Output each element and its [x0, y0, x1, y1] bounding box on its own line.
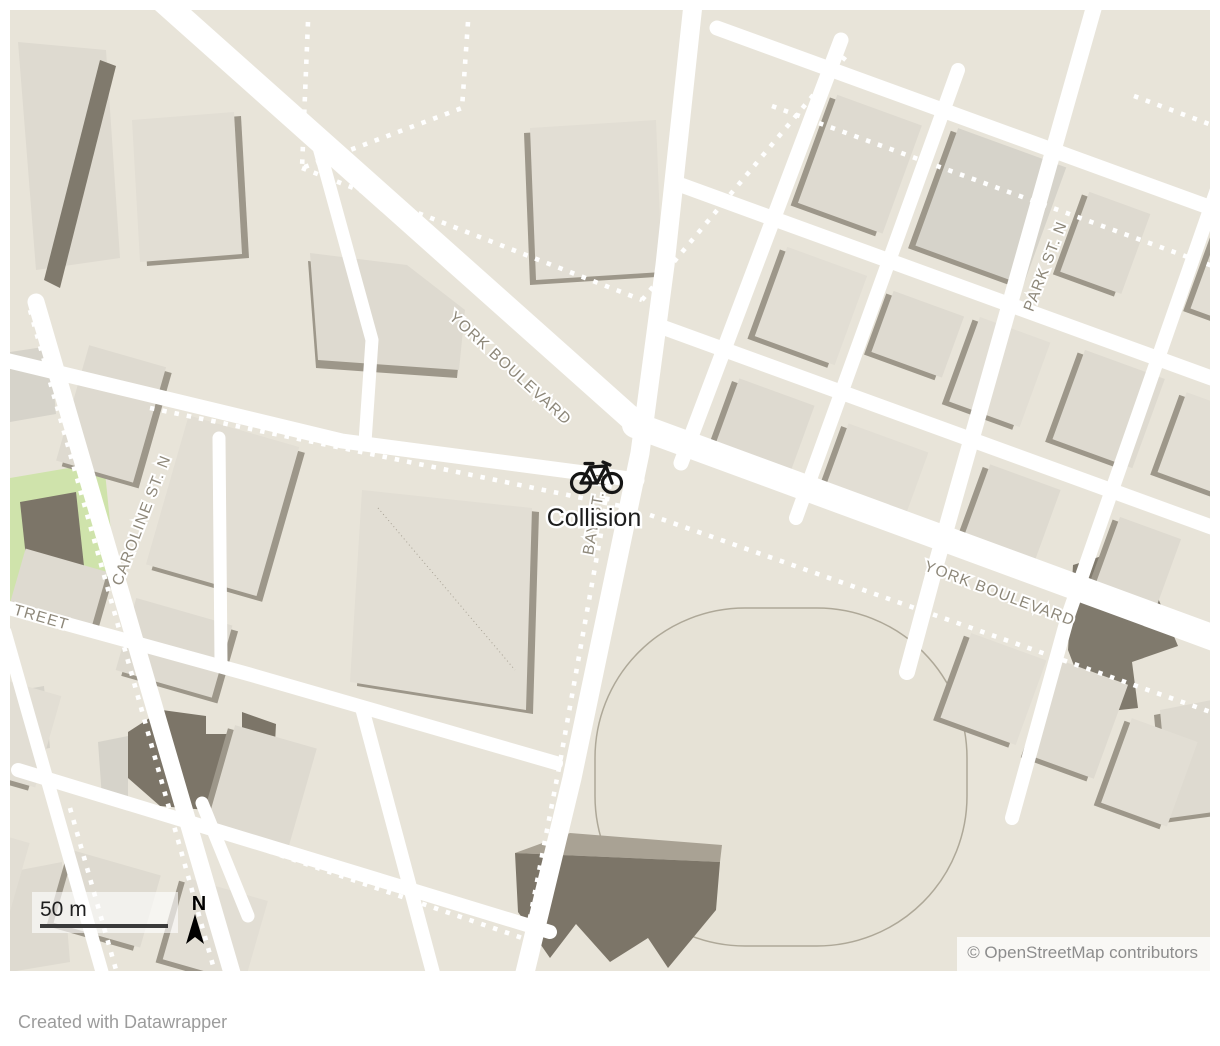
scale-bar-line [40, 924, 168, 928]
building-large-central [350, 490, 532, 710]
osm-attribution[interactable]: © OpenStreetMap contributors [957, 937, 1210, 971]
scale-label: 50 m [40, 898, 168, 921]
north-arrow-icon [186, 914, 204, 944]
street-label-york-upper: YORK BOULEVARD [445, 309, 574, 429]
collision-label: Collision [547, 504, 641, 532]
scale-bar: 50 m [32, 892, 178, 933]
datawrapper-credit[interactable]: Created with Datawrapper [18, 1012, 227, 1033]
north-arrow: N [186, 894, 212, 944]
north-label: N [186, 894, 212, 914]
page: YORK BOULEVARD YORK BOULEVARD CAROLINE S… [0, 0, 1220, 1046]
map-canvas: YORK BOULEVARD YORK BOULEVARD CAROLINE S… [10, 10, 1210, 971]
locator-map: YORK BOULEVARD YORK BOULEVARD CAROLINE S… [10, 10, 1210, 971]
